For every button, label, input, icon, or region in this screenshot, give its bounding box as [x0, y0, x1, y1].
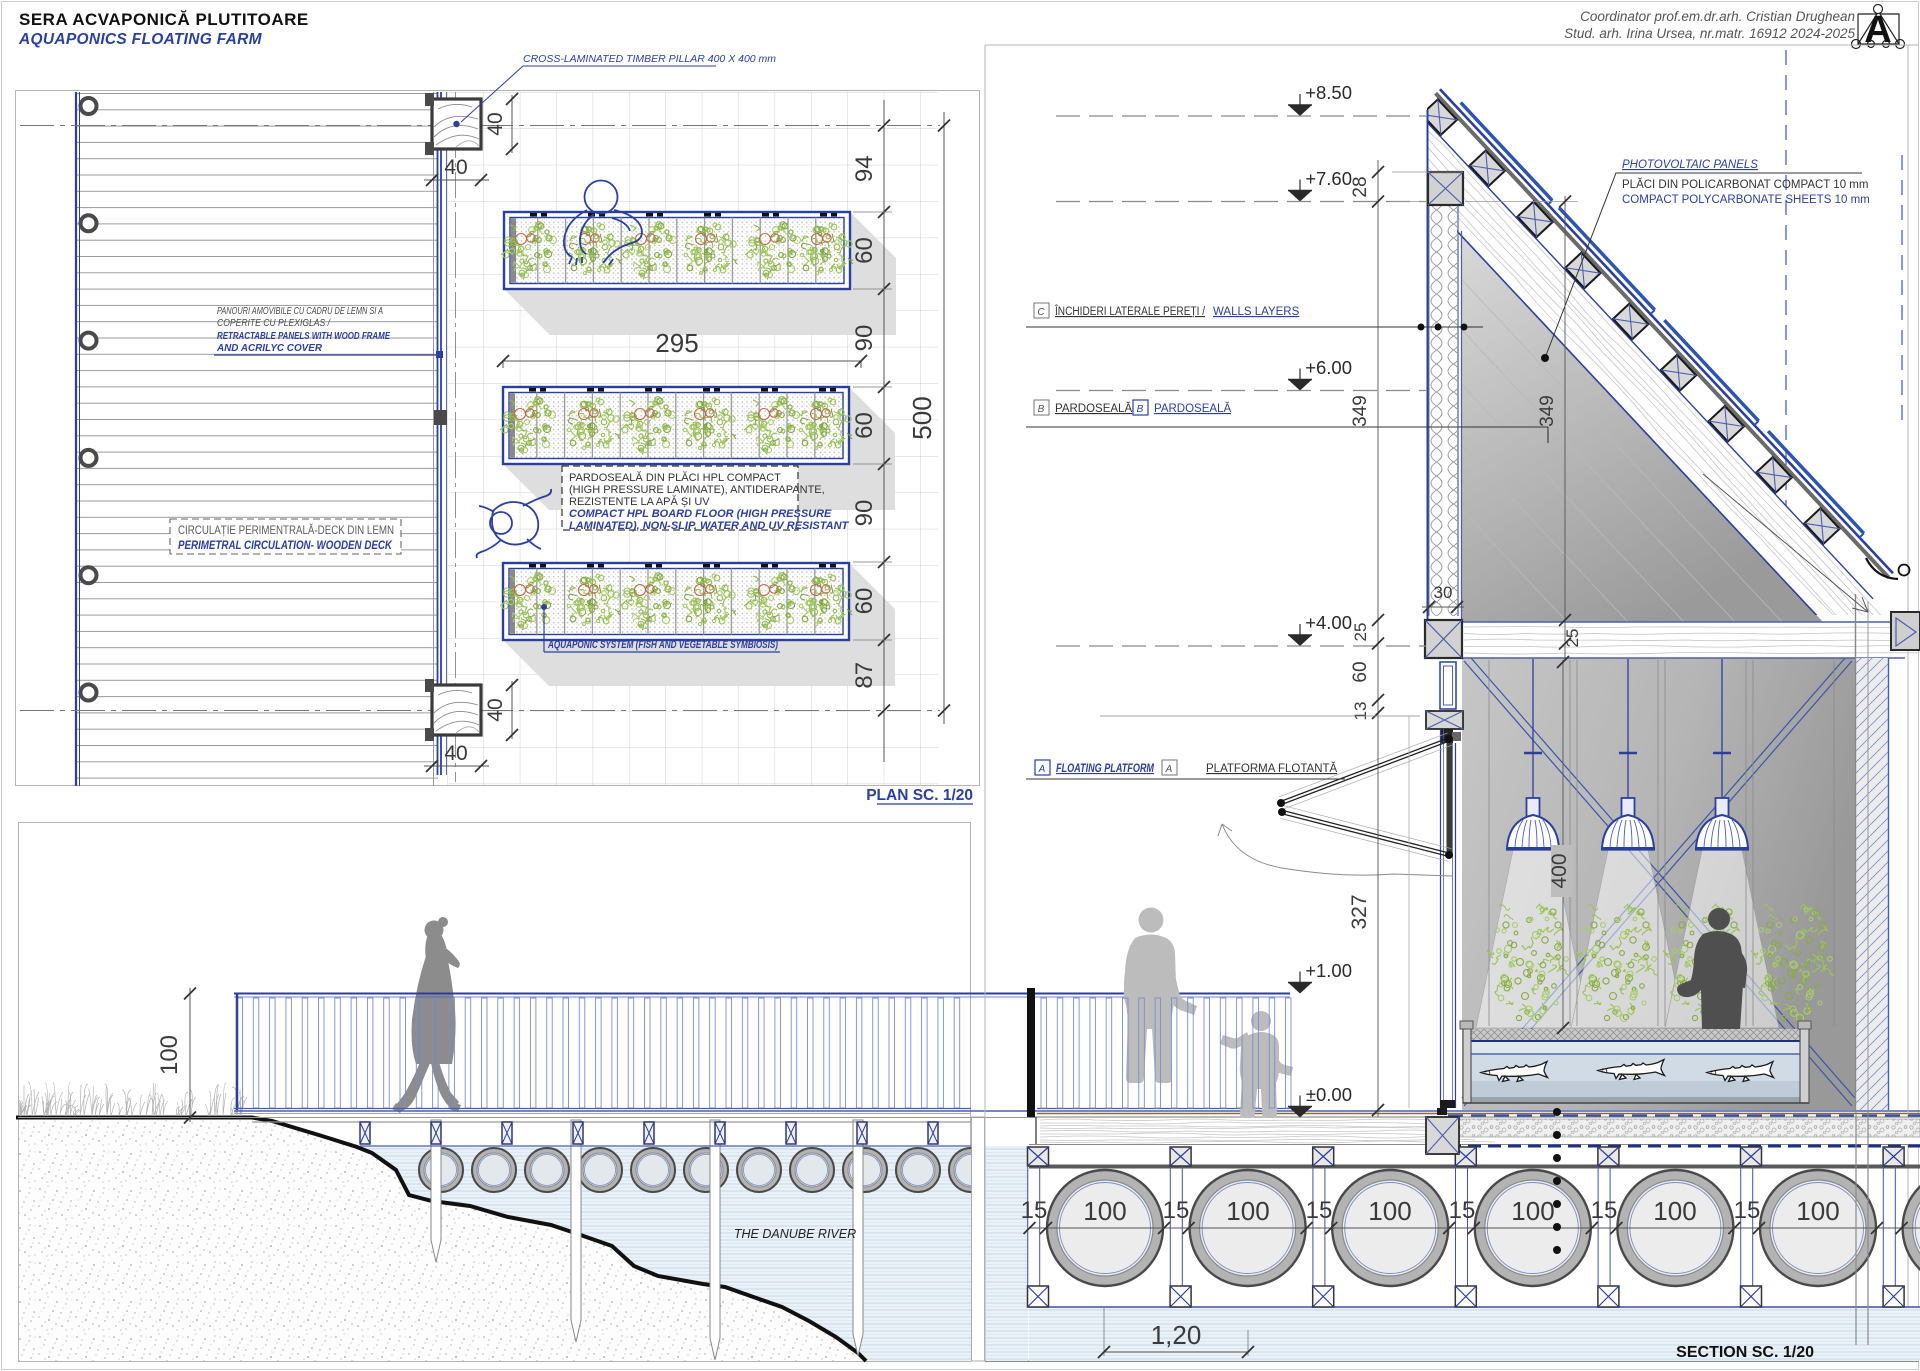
svg-text:±0.00: ±0.00 — [1306, 1084, 1352, 1105]
svg-text:100: 100 — [1796, 1196, 1839, 1226]
svg-text:100: 100 — [1511, 1196, 1554, 1226]
svg-text:60: 60 — [851, 237, 878, 264]
svg-text:B: B — [1038, 404, 1045, 415]
svg-text:COMPACT HPL BOARD FLOOR (HIGH: COMPACT HPL BOARD FLOOR (HIGH PRESSURE — [569, 508, 832, 520]
svg-text:25: 25 — [1351, 623, 1370, 642]
svg-text:15: 15 — [1591, 1197, 1618, 1224]
svg-text:Coordinator prof.em.dr.arh.: Coordinator prof.em.dr.arh. Cristian Dru… — [1580, 9, 1855, 24]
svg-text:COMPACT POLYCARBONATE SHEETS 1: COMPACT POLYCARBONATE SHEETS 10 mm — [1622, 194, 1870, 206]
svg-text:87: 87 — [851, 662, 878, 689]
svg-text:90: 90 — [851, 500, 878, 527]
svg-text:PHOTOVOLTAIC PANELS: PHOTOVOLTAIC PANELS — [1622, 159, 1758, 171]
svg-text:28: 28 — [1350, 176, 1371, 197]
svg-text:PLĂCI DIN POLICARBONAT COMPACT: PLĂCI DIN POLICARBONAT COMPACT 10 mm — [1622, 178, 1868, 191]
svg-text:15: 15 — [1449, 1197, 1476, 1224]
svg-text:100: 100 — [1368, 1196, 1411, 1226]
svg-text:RETRACTABLE PANELS WITH WOOD F: RETRACTABLE PANELS WITH WOOD FRAME — [217, 330, 391, 342]
svg-text:500: 500 — [907, 396, 937, 439]
svg-text:THE DANUBE RIVER: THE DANUBE RIVER — [734, 1227, 856, 1241]
svg-text:60: 60 — [1350, 661, 1371, 682]
svg-text:100: 100 — [1653, 1196, 1696, 1226]
svg-text:(HIGH PRESSURE LAMINATE), ANTI: (HIGH PRESSURE LAMINATE), ANTIDERAPANTE, — [569, 484, 825, 496]
svg-text:PLATFORMA FLOTANTĂ: PLATFORMA FLOTANTĂ — [1206, 762, 1338, 775]
svg-text:Stud. arh. Irina Ursea, nr.ma: Stud. arh. Irina Ursea, nr.matr. 16912 2… — [1564, 26, 1855, 41]
svg-text:WALLS LAYERS: WALLS LAYERS — [1213, 306, 1300, 318]
svg-text:LAMINATED), NON-SLIP, WATER AN: LAMINATED), NON-SLIP, WATER AND UV RESIS… — [569, 520, 850, 532]
svg-text:CROSS-LAMINATED TIMBER PILLAR: CROSS-LAMINATED TIMBER PILLAR 400 X 400 … — [523, 53, 776, 65]
svg-text:PLAN SC. 1/20: PLAN SC. 1/20 — [866, 787, 973, 804]
svg-text:327: 327 — [1348, 894, 1371, 929]
svg-text:1,20: 1,20 — [1151, 1320, 1202, 1350]
svg-text:PARDOSEALĂ: PARDOSEALĂ — [1154, 402, 1231, 415]
svg-text:AND ACRILYC COVER: AND ACRILYC COVER — [216, 342, 322, 354]
svg-text:25: 25 — [1563, 629, 1582, 648]
svg-text:30: 30 — [1434, 583, 1453, 602]
svg-text:ÎNCHIDERI LATERALE PEREȚI /: ÎNCHIDERI LATERALE PEREȚI / — [1054, 305, 1206, 318]
svg-text:40: 40 — [444, 742, 467, 765]
svg-text:PERIMETRAL CIRCULATION- WOODEN: PERIMETRAL CIRCULATION- WOODEN DECK — [178, 540, 393, 552]
svg-text:AQUAPONIC SYSTEM (FISH AND VE: AQUAPONIC SYSTEM (FISH AND VEGETABLE SYM… — [547, 639, 778, 651]
svg-text:40: 40 — [444, 156, 467, 179]
svg-text:15: 15 — [1734, 1197, 1761, 1224]
svg-text:+6.00: +6.00 — [1305, 357, 1352, 378]
svg-text:C: C — [1037, 307, 1045, 318]
svg-text:CIRCULAȚIE PERIMENTRALĂ-DECK D: CIRCULAȚIE PERIMENTRALĂ-DECK DIN LEMN — [178, 524, 394, 537]
svg-text:100: 100 — [1226, 1196, 1269, 1226]
svg-text:400: 400 — [1548, 853, 1571, 888]
svg-text:A: A — [1038, 764, 1046, 775]
svg-text:+4.00: +4.00 — [1305, 612, 1352, 633]
svg-text:+8.50: +8.50 — [1305, 82, 1352, 103]
svg-text:REZISTENTE LA APĂ ȘI UV: REZISTENTE LA APĂ ȘI UV — [569, 495, 710, 508]
svg-text:40: 40 — [484, 112, 507, 135]
svg-text:349: 349 — [1537, 395, 1558, 427]
svg-text:94: 94 — [851, 155, 878, 182]
svg-text:15: 15 — [1021, 1197, 1048, 1224]
svg-text:+7.60: +7.60 — [1305, 168, 1352, 189]
svg-text:COPERITE CU PLEXIGLAS /: COPERITE CU PLEXIGLAS / — [217, 317, 331, 329]
svg-text:B: B — [1137, 404, 1144, 415]
svg-text:13: 13 — [1351, 702, 1370, 721]
svg-text:PANOURI AMOVIBILE CU CADRU DE: PANOURI AMOVIBILE CU CADRU DE LEMN SI A — [217, 305, 383, 317]
svg-text:FLOATING PLATFORM: FLOATING PLATFORM — [1056, 763, 1154, 775]
svg-text:100: 100 — [1083, 1196, 1126, 1226]
svg-text:+1.00: +1.00 — [1305, 960, 1352, 981]
svg-text:SECTION SC. 1/20: SECTION SC. 1/20 — [1676, 1344, 1814, 1361]
svg-text:A: A — [1165, 764, 1173, 775]
svg-text:15: 15 — [1306, 1197, 1333, 1224]
svg-text:PARDOSEALĂ DIN PLĂCI HPL COMPA: PARDOSEALĂ DIN PLĂCI HPL COMPACT — [569, 471, 781, 484]
svg-text:15: 15 — [1163, 1197, 1190, 1224]
svg-text:295: 295 — [655, 328, 698, 358]
svg-text:349: 349 — [1350, 395, 1371, 427]
svg-text:100: 100 — [156, 1035, 183, 1075]
svg-text:60: 60 — [851, 588, 878, 615]
svg-text:40: 40 — [484, 698, 507, 721]
svg-text:PARDOSEALĂ: PARDOSEALĂ — [1055, 402, 1132, 415]
svg-text:90: 90 — [851, 325, 878, 352]
svg-text:SERA ACVAPONICĂ PLUTITOARE: SERA ACVAPONICĂ PLUTITOARE — [19, 10, 309, 29]
svg-text:AQUAPONICS FLOATING FARM: AQUAPONICS FLOATING FARM — [18, 31, 263, 48]
svg-text:60: 60 — [851, 412, 878, 439]
